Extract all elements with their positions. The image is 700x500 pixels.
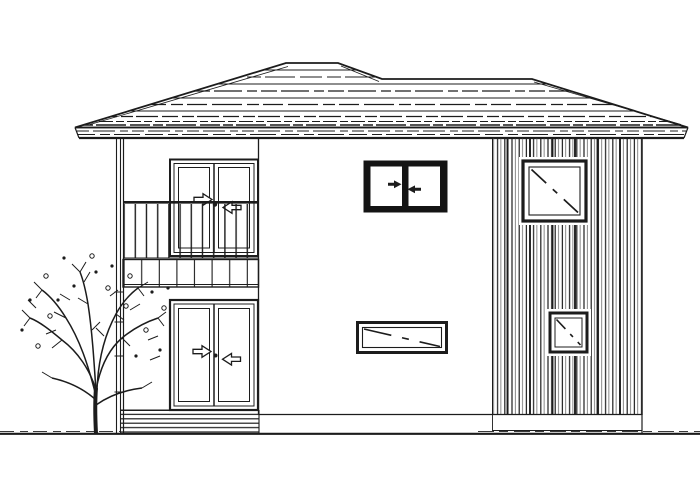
ground-floor-sliding-door — [170, 300, 258, 410]
hip-edge-mid-icon — [341, 66, 379, 82]
upper-middle-sliding-window — [364, 161, 448, 213]
balcony-railing — [123, 202, 259, 258]
upper-right-window — [519, 157, 590, 225]
lower-middle-awning-window — [358, 323, 447, 353]
deck-step-band — [121, 410, 259, 434]
downspout — [115, 139, 124, 433]
elevation-drawing — [0, 0, 700, 500]
eaves-fascia — [75, 128, 688, 139]
hip-edge-left-icon — [90, 67, 288, 125]
tree-trunk — [95, 388, 96, 434]
hip-edge-right-icon — [534, 82, 681, 125]
ground-line — [0, 432, 700, 434]
elevation-svg — [0, 0, 700, 500]
tree-branches — [30, 272, 158, 405]
slide-arrow-left-icon — [223, 353, 241, 365]
dashed-diagonal-icon — [364, 329, 440, 347]
balcony-fascia-panel — [123, 260, 259, 288]
roof-outline — [75, 63, 688, 128]
meeting-stile-dot-icon — [214, 354, 218, 358]
hipped-roof — [60, 63, 700, 138]
slide-arrow-right-icon — [193, 346, 211, 358]
foundation — [259, 415, 643, 434]
lower-right-window — [546, 309, 591, 356]
